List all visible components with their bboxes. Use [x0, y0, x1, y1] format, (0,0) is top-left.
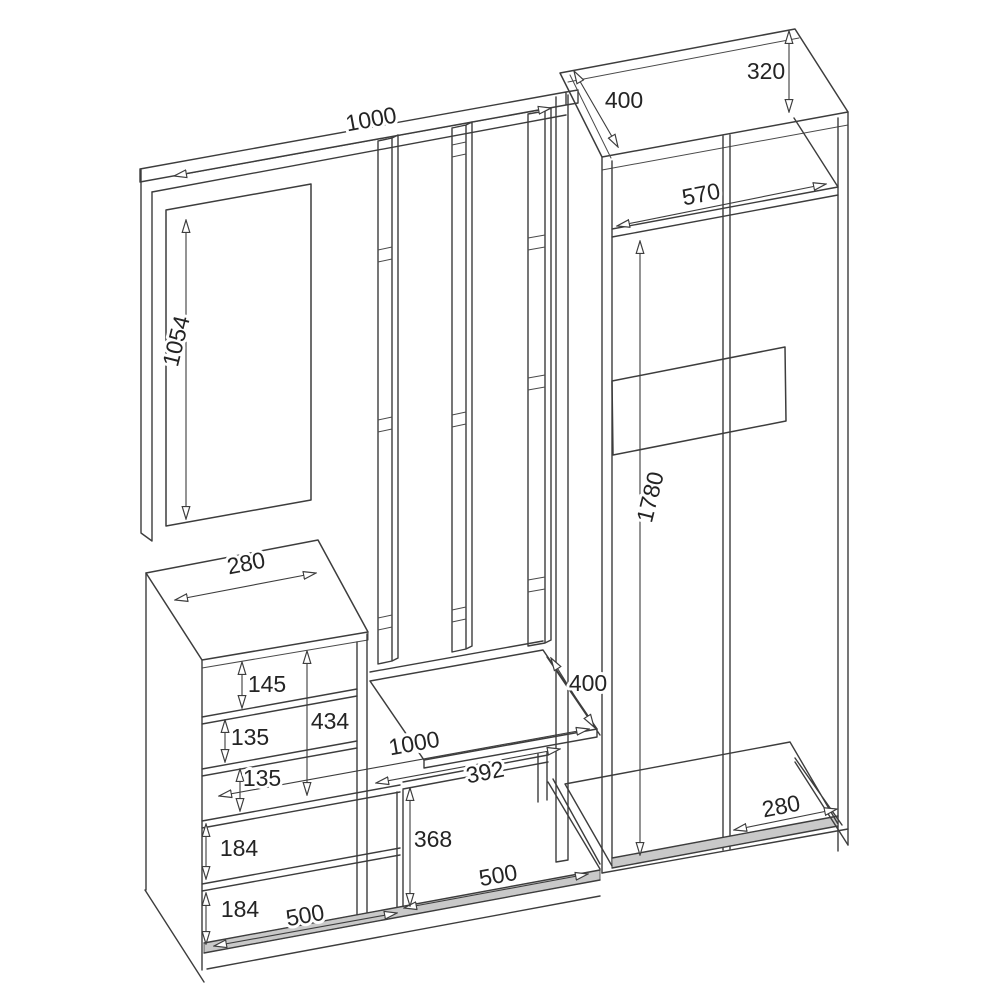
wall-slat-1-joints: [378, 247, 392, 630]
furniture-dimension-drawing: 1000 1054 400 320 570 1780 280 280 145 4…: [0, 0, 1000, 1000]
wall-slat-2: [452, 122, 472, 652]
dim-label-570: 570: [680, 178, 723, 211]
cabinet-right-edge: [357, 634, 367, 918]
wardrobe-floor-edges: [565, 742, 848, 873]
right-stile: [556, 95, 568, 862]
wardrobe-plinth-strip: [612, 816, 838, 868]
drawing-page: 1000 1054 400 320 570 1780 280 280 145 4…: [0, 0, 1000, 1000]
dim-label-184b: 184: [221, 896, 260, 922]
wardrobe-door-partition: [723, 135, 730, 850]
wardrobe-mid-panel: [612, 347, 786, 455]
dim-label-cabinet-top-depth: 280: [225, 547, 268, 580]
dim-label-392: 392: [464, 756, 507, 789]
dim-line-570: [617, 184, 826, 226]
wardrobe: [560, 29, 848, 873]
wall-slat-2-joints: [452, 142, 466, 622]
dim-label-184a: 184: [220, 835, 259, 861]
dim-label-135a: 135: [231, 724, 269, 750]
wall-slat-1: [378, 135, 398, 664]
dim-line-cabinet-top-depth: [175, 573, 316, 600]
dim-label-bench-depth: 400: [569, 670, 607, 696]
dimension-labels: 1000 1054 400 320 570 1780 280 280 145 4…: [157, 58, 802, 931]
wall-slat-3-joints: [528, 235, 545, 592]
wardrobe-top-face: [560, 29, 848, 157]
dim-label-434: 434: [311, 708, 350, 734]
dim-label-mirror-height: 1054: [157, 313, 195, 369]
top-rail: [140, 90, 578, 192]
mirror: [166, 184, 311, 526]
dimension-lines: [174, 31, 837, 946]
dim-label-320: 320: [747, 58, 785, 84]
dim-label-368: 368: [414, 826, 452, 852]
wardrobe-top-shelf: [612, 118, 838, 237]
wall-panel: [140, 90, 578, 862]
dim-label-135b: 135: [243, 765, 281, 791]
lower-cabinet-bench: [145, 540, 600, 982]
dim-label-panel-width: 1000: [343, 102, 398, 137]
dim-label-wardrobe-top-depth: 400: [605, 87, 643, 113]
dim-label-bench-width: 1000: [387, 726, 442, 760]
dim-label-145: 145: [248, 671, 286, 697]
dim-label-1780: 1780: [631, 469, 669, 525]
bench-mid-partition: [397, 790, 403, 912]
cabinet-left-edges: [145, 573, 204, 982]
cabinet-top-thickness: [202, 632, 368, 668]
left-stile: [141, 170, 152, 541]
bench-right-end-panel: [538, 752, 600, 869]
